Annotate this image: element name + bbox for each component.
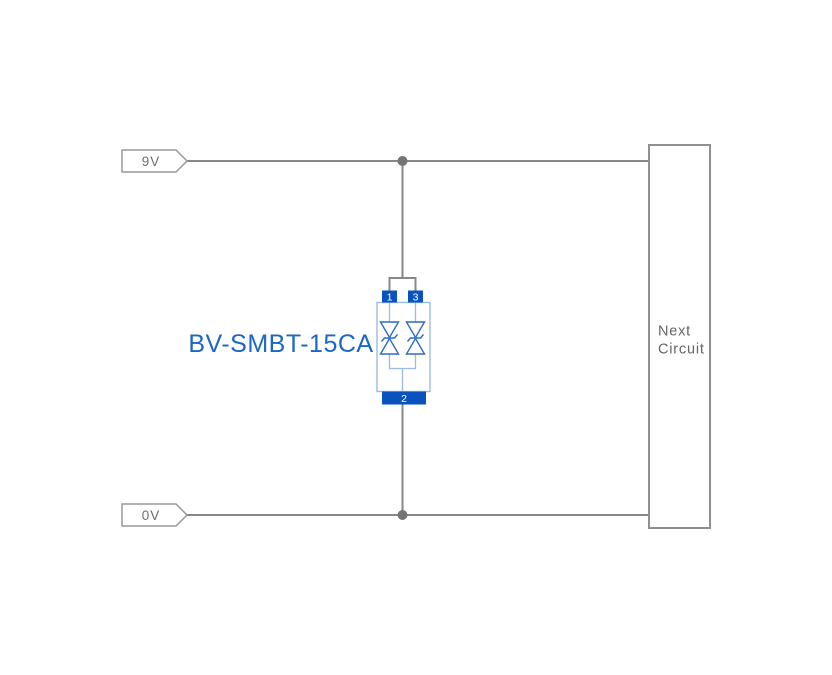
junction-dot-bottom — [398, 510, 408, 520]
next-circuit-label-line1: Next — [658, 324, 691, 340]
net-tag-0v-label: 0V — [142, 508, 161, 523]
component-label: BV-SMBT-15CA — [188, 330, 373, 358]
pin-2-number: 2 — [401, 393, 407, 405]
pin-bracket-wire — [390, 278, 416, 291]
next-circuit-label-line2: Circuit — [658, 342, 705, 358]
net-tag-9v-label: 9V — [142, 154, 161, 169]
diode-node-dot-right — [414, 336, 417, 339]
tvs-component: 1 3 2 — [377, 291, 430, 406]
diode-node-dot-left — [388, 336, 391, 339]
circuit-diagram: 9V 0V Next Circuit — [0, 0, 832, 675]
junction-dot-top — [398, 156, 408, 166]
pin-3-number: 3 — [413, 292, 419, 304]
pin-1-number: 1 — [387, 292, 393, 304]
schematic-svg: 9V 0V Next Circuit — [0, 0, 832, 675]
